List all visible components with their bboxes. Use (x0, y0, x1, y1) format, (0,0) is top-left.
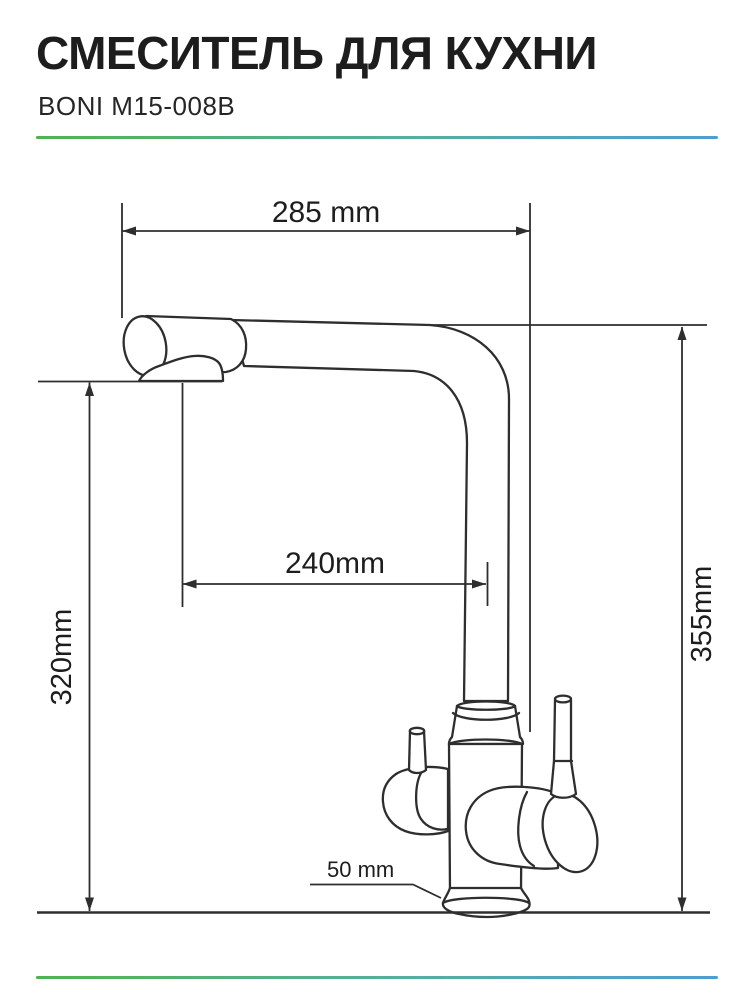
faucet-drawing (119, 313, 606, 917)
arrow-right (516, 227, 530, 236)
dimension-320: 320mm (38, 382, 222, 912)
dimension-diagram: 285 mm 240mm 320mm 355mm (0, 0, 750, 1000)
arrow-left (122, 227, 136, 236)
right-handle-stem (551, 700, 576, 798)
dimension-320-label: 320mm (46, 609, 78, 706)
left-stem-cap (410, 728, 424, 734)
bottom-accent-line (36, 976, 718, 979)
arrow-down (85, 898, 94, 912)
left-handle-stem (409, 731, 426, 773)
dimension-285-label: 285 mm (272, 196, 380, 229)
dimension-50-label: 50 mm (327, 857, 394, 882)
faucet-pipe (231, 320, 509, 701)
dimension-240-label: 240mm (285, 547, 385, 580)
left-handle (383, 728, 448, 835)
right-stem-cap (555, 696, 571, 703)
arrow-left (183, 580, 197, 589)
arrow-up (678, 327, 687, 341)
dimension-50: 50 mm (310, 857, 441, 898)
arrow-up (85, 383, 94, 397)
arrow-down (678, 898, 687, 912)
dimension-240: 240mm (183, 383, 488, 607)
page-root: СМЕСИТЕЛЬ ДЛЯ КУХНИ BONI M15-008B (0, 0, 750, 1000)
leader-line (310, 885, 441, 899)
dimension-355-label: 355mm (686, 566, 718, 663)
